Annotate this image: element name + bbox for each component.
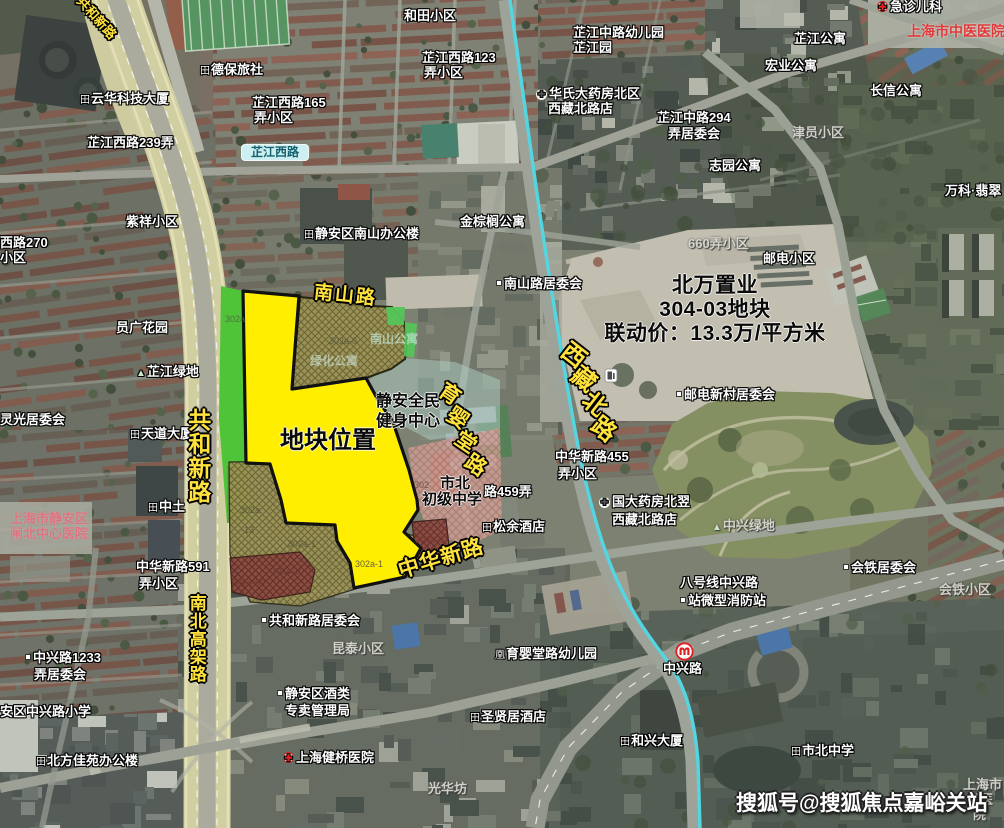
svg-text:302a-10: 302a-10 [271,566,304,576]
svg-text:-13: -13 [241,525,254,535]
svg-text:302a-1: 302a-1 [355,559,383,569]
svg-text:绿化公寓: 绿化公寓 [310,353,358,368]
svg-text:302a: 302a [225,314,245,324]
svg-text:302a-0: 302a-0 [415,535,443,545]
svg-text:302a-1: 302a-1 [288,539,316,549]
svg-text:302a: 302a [240,505,260,515]
svg-text:南山公寓: 南山公寓 [370,331,418,346]
svg-text:302a-09: 302a-09 [232,578,265,588]
svg-text:302a-0: 302a-0 [329,336,357,346]
svg-text:302: 302 [414,480,429,490]
